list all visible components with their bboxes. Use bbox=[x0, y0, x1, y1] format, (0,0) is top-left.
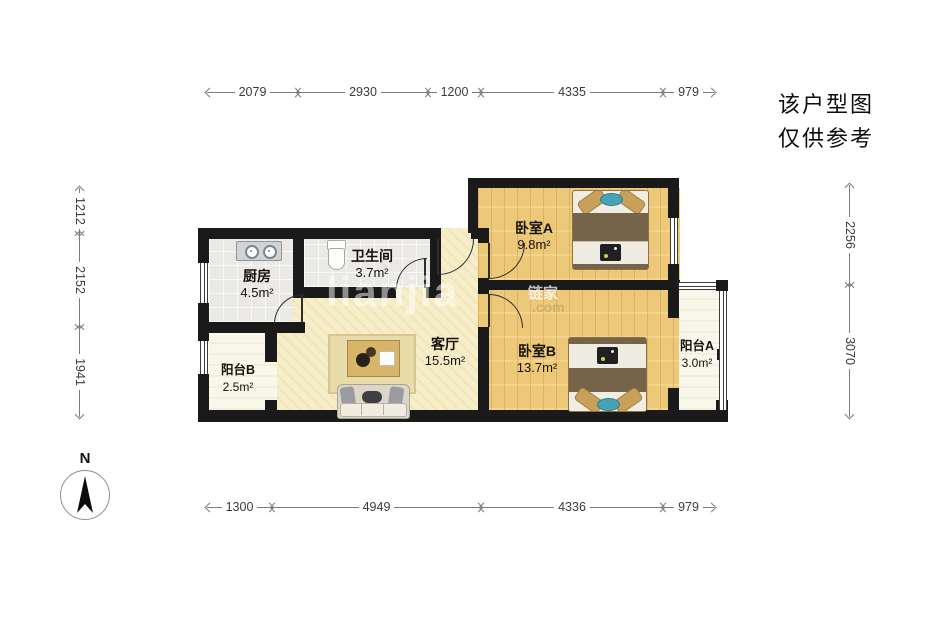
toilet-icon bbox=[327, 240, 344, 269]
wall bbox=[265, 400, 277, 412]
wall bbox=[293, 287, 396, 298]
north-compass: N bbox=[57, 450, 113, 520]
bed-tray-icon bbox=[600, 244, 621, 261]
dim-left-1: 1212 bbox=[72, 188, 88, 233]
wall bbox=[265, 332, 277, 362]
dim-top-2: 2930 bbox=[298, 84, 428, 100]
bed-foot bbox=[573, 264, 648, 269]
wall bbox=[198, 228, 209, 263]
room-label-bedroom-a: 卧室A 9.8m² bbox=[515, 220, 553, 253]
wall bbox=[668, 264, 679, 290]
north-arrow-icon bbox=[63, 473, 107, 517]
wall bbox=[468, 178, 478, 233]
dim-top-3: 1200 bbox=[428, 84, 481, 100]
room-label-living: 客厅 15.5m² bbox=[425, 336, 465, 369]
floorplan-page: { "notice": {"line1": "该户型图", "line2": "… bbox=[0, 0, 942, 619]
dim-left-3: 1941 bbox=[72, 327, 88, 417]
kitchen-door-leaf bbox=[301, 294, 303, 323]
bed-accent bbox=[597, 398, 620, 411]
window bbox=[679, 282, 716, 290]
dim-top-5: 979 bbox=[663, 84, 714, 100]
window bbox=[719, 291, 727, 410]
sofa-seat bbox=[340, 403, 407, 417]
seat-divider bbox=[361, 404, 362, 415]
bathroom-door-leaf bbox=[424, 258, 426, 288]
wall bbox=[478, 280, 680, 290]
room-label-bathroom: 卫生间 3.7m² bbox=[351, 248, 393, 281]
dim-left-2: 2152 bbox=[72, 233, 88, 327]
dim-top-4: 4335 bbox=[481, 84, 663, 100]
wall bbox=[668, 388, 679, 410]
sofa bbox=[337, 384, 408, 417]
notice-line-1: 该户型图 bbox=[778, 88, 898, 122]
coffee-table bbox=[347, 340, 400, 377]
decor-card-icon bbox=[379, 351, 395, 366]
dim-bottom-4: 979 bbox=[663, 499, 714, 515]
seat-divider bbox=[383, 404, 384, 415]
bed-a bbox=[572, 190, 649, 270]
dim-bottom-2: 4949 bbox=[272, 499, 481, 515]
wall bbox=[478, 327, 489, 422]
room-label-bedroom-b: 卧室B 13.7m² bbox=[517, 343, 557, 376]
north-label: N bbox=[57, 450, 113, 468]
room-label-balcony-b: 阳台B 2.5m² bbox=[221, 362, 255, 395]
toilet-bowl bbox=[328, 248, 345, 270]
dim-bottom-1: 1300 bbox=[207, 499, 272, 515]
window bbox=[200, 341, 208, 374]
wall bbox=[668, 178, 679, 218]
burner-icon bbox=[245, 245, 259, 259]
dim-top-1: 2079 bbox=[207, 84, 298, 100]
bedroom-b-door-leaf bbox=[488, 294, 490, 327]
entry-door-leaf bbox=[437, 239, 439, 274]
window bbox=[200, 263, 208, 303]
room-label-balcony-a: 阳台A 3.0m² bbox=[680, 338, 714, 371]
window bbox=[670, 218, 678, 264]
bed-tray-icon bbox=[597, 347, 618, 364]
wall bbox=[716, 280, 728, 291]
wall bbox=[668, 290, 679, 318]
sofa-dark-pillow bbox=[362, 391, 382, 403]
compass-circle bbox=[60, 470, 110, 520]
notice-line-2: 仅供参考 bbox=[778, 122, 898, 156]
bedroom-a-door-leaf bbox=[488, 243, 490, 278]
wall bbox=[426, 287, 441, 298]
stove-icon bbox=[236, 241, 282, 261]
wall bbox=[293, 228, 304, 295]
wall bbox=[478, 228, 489, 243]
dim-bottom-3: 4336 bbox=[481, 499, 663, 515]
dim-right-1: 2256 bbox=[842, 185, 858, 285]
wall bbox=[468, 178, 679, 188]
bed-duvet bbox=[573, 213, 648, 241]
bed-b bbox=[568, 337, 647, 412]
dim-right-2: 3070 bbox=[842, 285, 858, 417]
wall bbox=[198, 410, 728, 422]
burner-icon bbox=[263, 245, 277, 259]
wall bbox=[198, 228, 438, 239]
bed-accent bbox=[600, 193, 623, 206]
room-label-kitchen: 厨房 4.5m² bbox=[240, 268, 273, 301]
decor-bowl-icon bbox=[366, 347, 376, 357]
reference-notice: 该户型图 仅供参考 bbox=[778, 88, 898, 156]
